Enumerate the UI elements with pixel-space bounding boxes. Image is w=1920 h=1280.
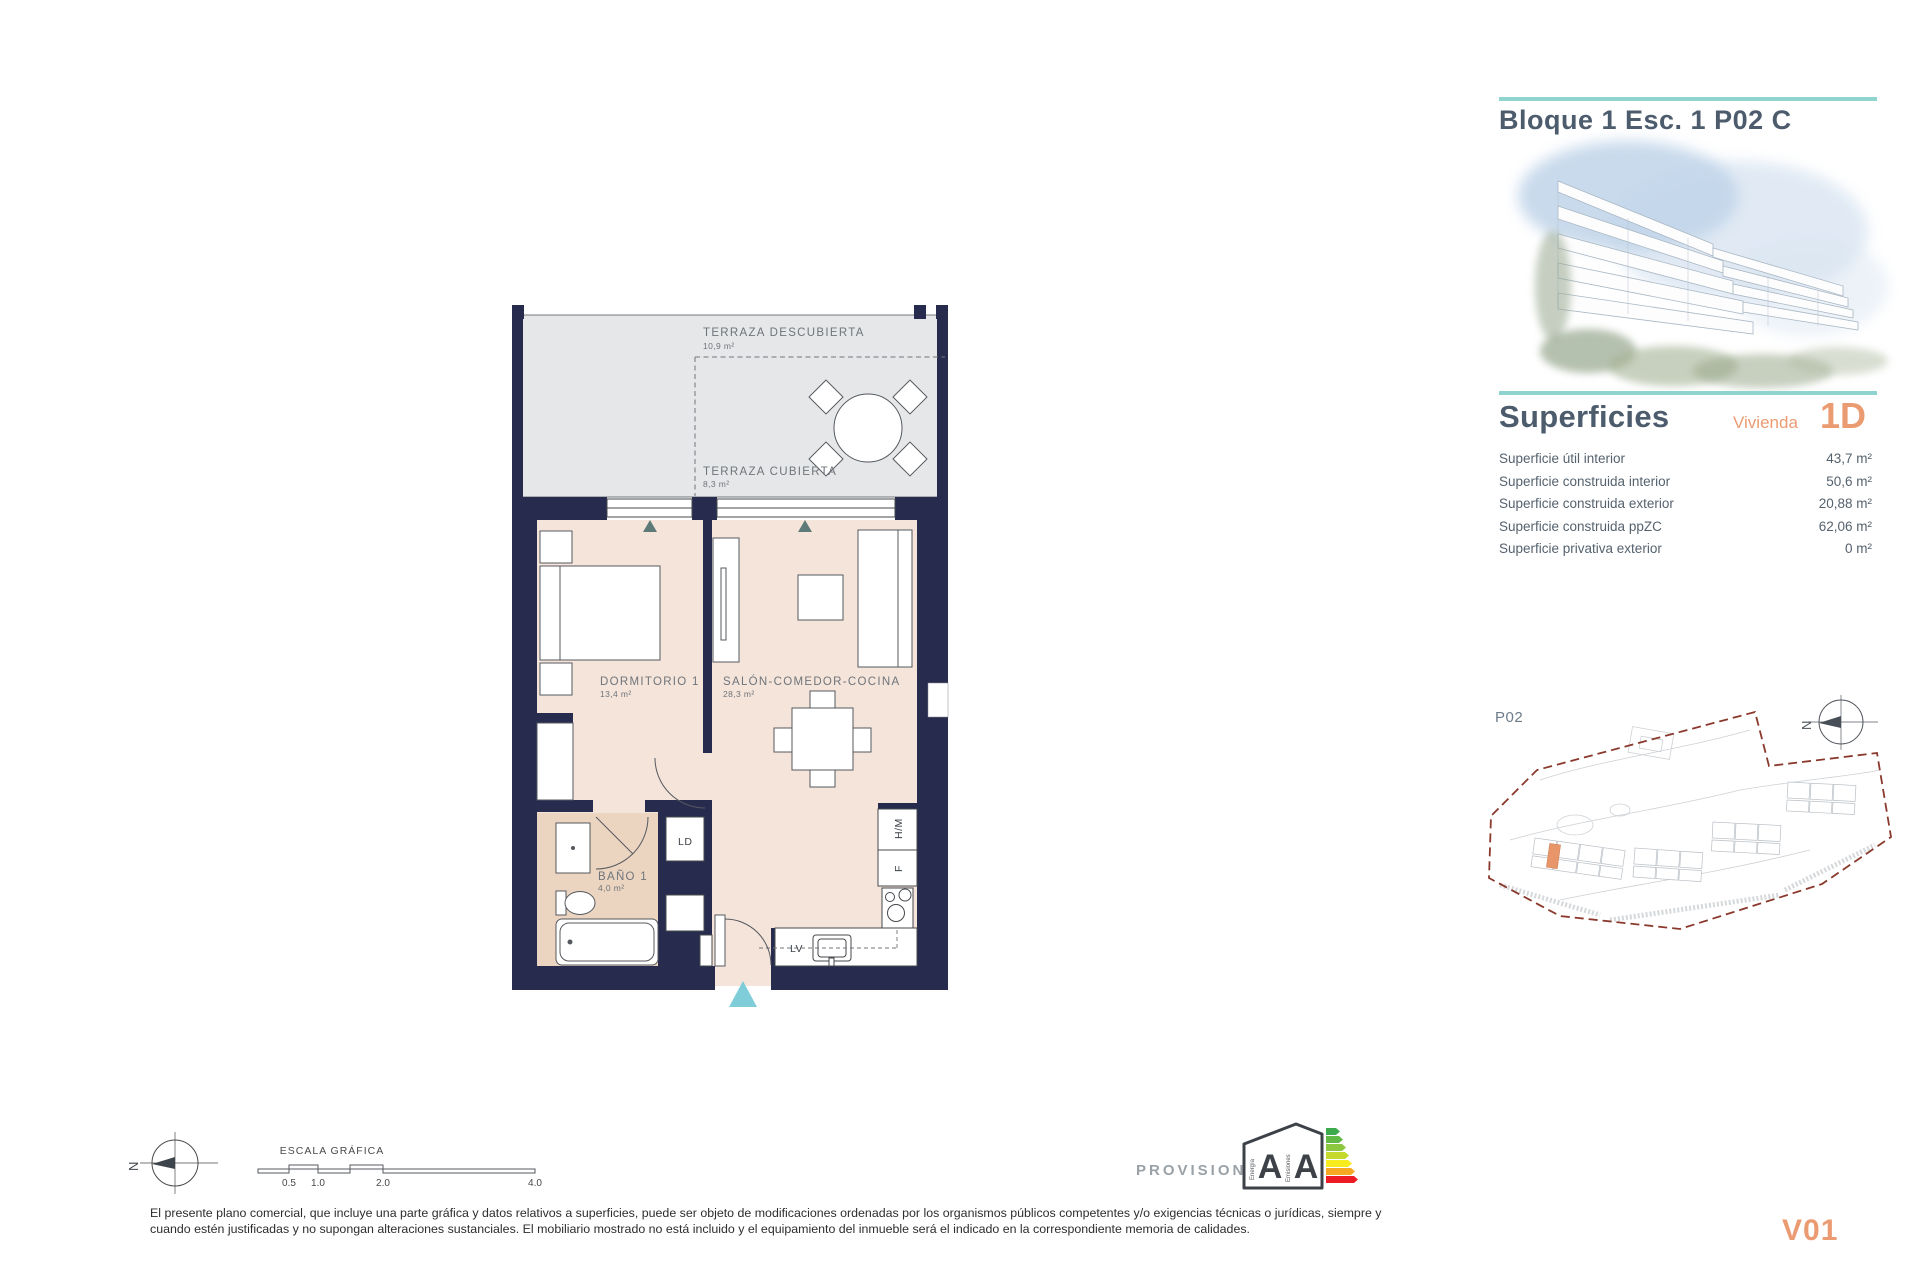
row-label: Superficie construida interior bbox=[1499, 474, 1670, 489]
scale-tick: 0.5 bbox=[282, 1178, 296, 1189]
ld-label: LD bbox=[678, 836, 692, 848]
energy-letter: A bbox=[1258, 1148, 1283, 1186]
row-value: 43,7 m² bbox=[1826, 451, 1872, 466]
lv-label: LV bbox=[790, 943, 803, 955]
hm-label: H/M bbox=[893, 818, 905, 839]
floor-key-label: P02 bbox=[1495, 709, 1523, 726]
salon-area: 28,3 m² bbox=[723, 689, 755, 699]
terraza-cubierta-area: 8,3 m² bbox=[703, 479, 730, 489]
energy-axis-label: Energía bbox=[1250, 1158, 1256, 1180]
site-buildings bbox=[1531, 782, 1856, 882]
dormitorio-label: DORMITORIO 1 bbox=[600, 676, 700, 688]
emissions-letter: A bbox=[1294, 1148, 1319, 1186]
terraza-descubierta-area: 10,9 m² bbox=[703, 341, 735, 351]
table-row: Superficie construida interior 50,6 m² bbox=[1499, 474, 1872, 497]
north-arrow-siteplan: N bbox=[1799, 695, 1878, 750]
building-illustration bbox=[1508, 126, 1910, 394]
side-wall-recess bbox=[928, 683, 948, 717]
version-label: V01 bbox=[1782, 1214, 1838, 1248]
table-row: Superficie útil interior 43,7 m² bbox=[1499, 451, 1872, 474]
scale-title: ESCALA GRÁFICA bbox=[280, 1144, 384, 1157]
table-row: Superficie construida exterior 20,88 m² bbox=[1499, 496, 1872, 519]
f-label: F bbox=[893, 865, 905, 872]
bano-label: BAÑO 1 bbox=[598, 870, 648, 883]
row-value: 0 m² bbox=[1845, 541, 1872, 556]
row-label: Superficie construida exterior bbox=[1499, 496, 1674, 511]
vivienda-code: 1D bbox=[1820, 395, 1866, 437]
north-letter: N bbox=[1799, 721, 1814, 730]
energy-scale-bars bbox=[1326, 1128, 1358, 1183]
terraza-descubierta-label: TERRAZA DESCUBIERTA bbox=[703, 327, 865, 339]
vivienda-label: Vivienda bbox=[1733, 413, 1798, 433]
table-row: Superficie privativa exterior 0 m² bbox=[1499, 541, 1872, 564]
disclaimer: El presente plano comercial, que incluye… bbox=[150, 1205, 1460, 1237]
north-letter: N bbox=[126, 1162, 141, 1171]
teal-rule-top bbox=[1499, 97, 1877, 101]
row-label: Superficie útil interior bbox=[1499, 451, 1625, 466]
scale-segments bbox=[258, 1165, 535, 1173]
plan-sheet: LD LV H/M F TERRAZA DESCUBIERTA bbox=[0, 0, 1920, 1280]
emissions-axis-label: Emisiones bbox=[1286, 1154, 1292, 1182]
row-label: Superficie privativa exterior bbox=[1499, 541, 1662, 556]
site-plan: P02 N bbox=[1480, 690, 1910, 960]
salon-label: SALÓN-COMEDOR-COCINA bbox=[723, 675, 900, 688]
scale-bar: ESCALA GRÁFICA 0.5 1.0 2.0 4.0 bbox=[250, 1140, 550, 1195]
scale-tick: 1.0 bbox=[311, 1178, 325, 1189]
north-arrow-plan: N bbox=[118, 1126, 248, 1206]
row-label: Superficie construida ppZC bbox=[1499, 519, 1662, 534]
disclaimer-line: El presente plano comercial, que incluye… bbox=[150, 1205, 1460, 1221]
disclaimer-line: cuando estén justificadas y no supongan … bbox=[150, 1221, 1460, 1237]
scale-tick: 4.0 bbox=[528, 1178, 542, 1189]
scale-tick: 2.0 bbox=[376, 1178, 390, 1189]
table-row: Superficie construida ppZC 62,06 m² bbox=[1499, 519, 1872, 542]
row-value: 20,88 m² bbox=[1819, 496, 1872, 511]
terrace-windows bbox=[607, 499, 895, 517]
superficies-heading: Superficies bbox=[1499, 399, 1669, 435]
superficies-table: Superficie útil interior 43,7 m² Superfi… bbox=[1499, 451, 1872, 564]
bano-area: 4,0 m² bbox=[598, 883, 625, 893]
row-value: 50,6 m² bbox=[1826, 474, 1872, 489]
terraza-cubierta-label: TERRAZA CUBIERTA bbox=[703, 466, 837, 478]
dormitorio-area: 13,4 m² bbox=[600, 689, 632, 699]
row-value: 62,06 m² bbox=[1819, 519, 1872, 534]
floorplan-drawing: LD LV H/M F TERRAZA DESCUBIERTA bbox=[512, 305, 952, 1015]
energy-rating-icon: A A Energía Emisiones bbox=[1240, 1118, 1358, 1192]
